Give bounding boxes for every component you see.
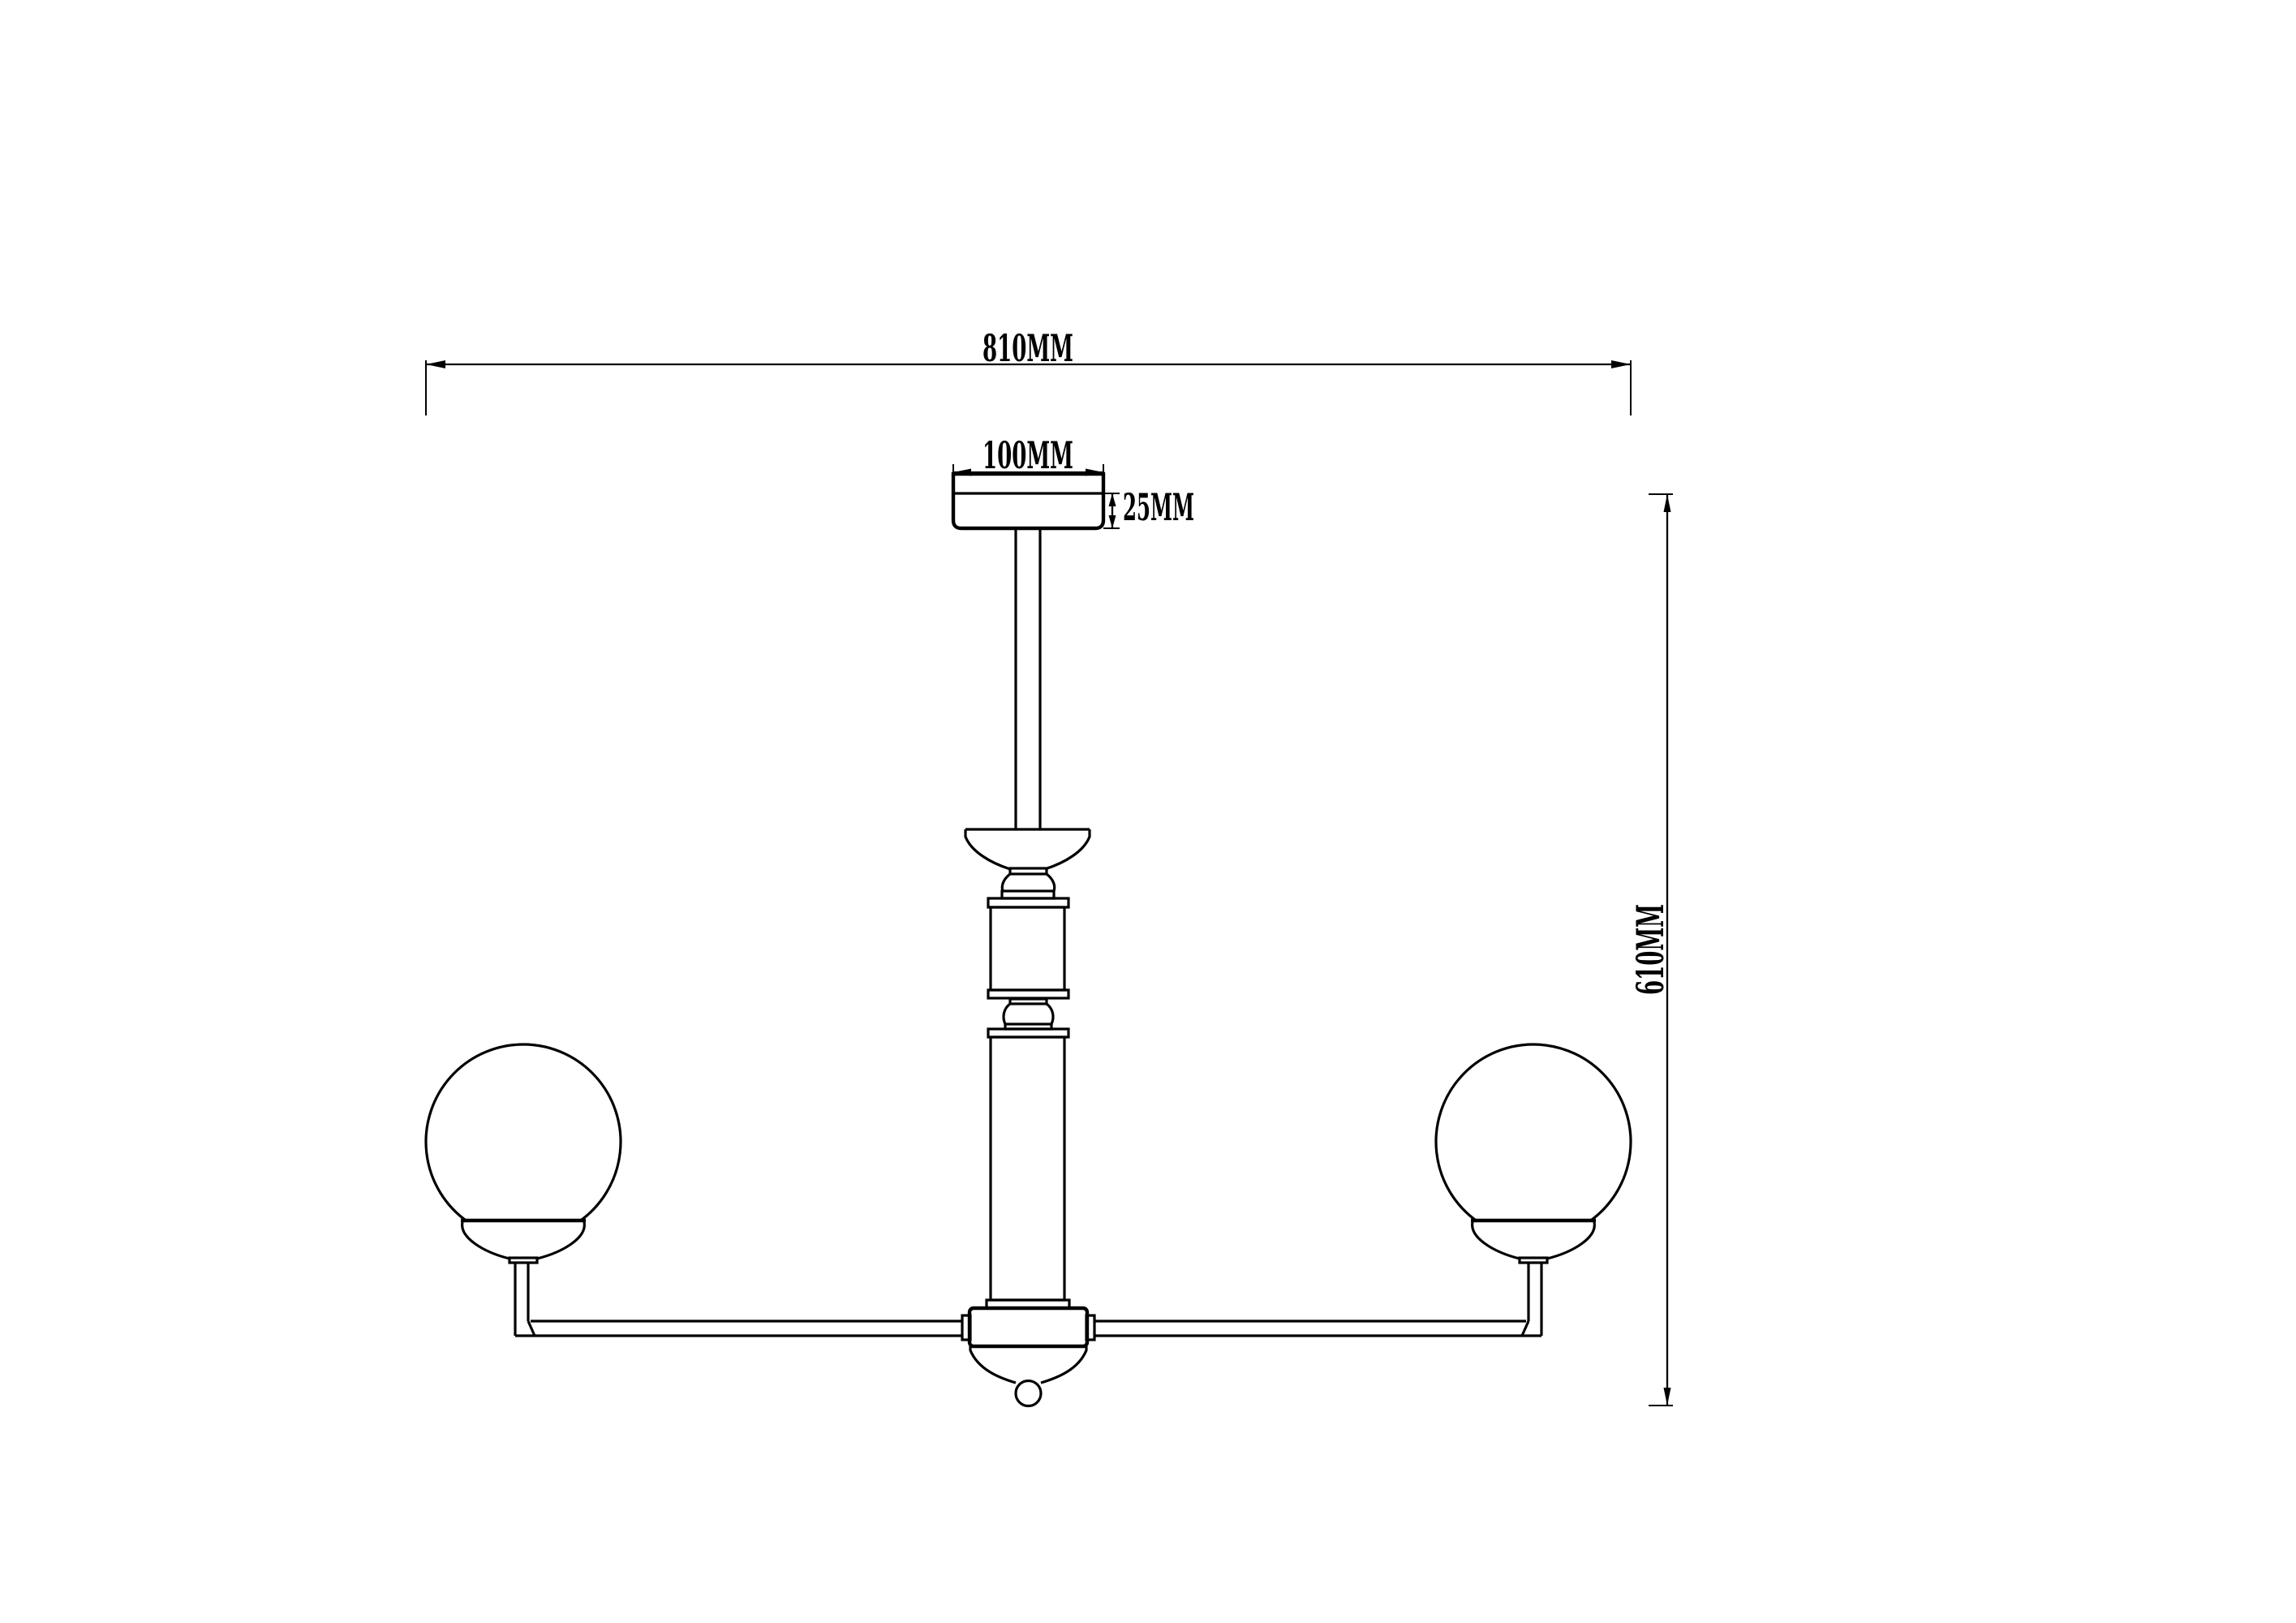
ceiling-canopy (953, 474, 1103, 528)
arrow-down-icon (1109, 515, 1116, 528)
hanging-stem (1016, 528, 1040, 829)
dim-overall-height: 610MM (1628, 494, 1673, 1406)
right-globe (1436, 1044, 1631, 1221)
finial-bell (970, 1346, 1016, 1383)
canopy-body (953, 474, 1103, 528)
left-shade-holder (461, 1220, 586, 1263)
flare-joint (965, 829, 1090, 869)
right-arm-plate (1086, 1315, 1094, 1340)
left-arm (515, 1262, 962, 1336)
chandelier-dimension-drawing: 810MM 100MM 25MM 610MM (0, 0, 2296, 1623)
arrow-right-icon (1611, 360, 1631, 368)
center-column (987, 1029, 1069, 1308)
dim-overall-width: 810MM (426, 326, 1631, 415)
canopy-width-label: 100MM (982, 433, 1073, 477)
arrow-up-icon (1664, 494, 1671, 512)
finial-ball (1016, 1381, 1041, 1406)
spool-knuckle-lower (1004, 999, 1053, 1029)
dim-canopy-width: 100MM (953, 433, 1103, 480)
arrow-left-icon (426, 360, 445, 368)
left-globe (426, 1044, 621, 1221)
overall-width-label: 810MM (982, 326, 1073, 370)
right-shade-holder (1471, 1220, 1596, 1263)
finial (970, 1346, 1086, 1406)
arrow-down-icon (1664, 1388, 1671, 1406)
right-arm (1094, 1262, 1541, 1336)
fixture (426, 474, 1631, 1406)
left-arm-plate (962, 1315, 970, 1340)
spool-knuckle-upper (1002, 868, 1055, 898)
left-arm-miter (528, 1321, 535, 1336)
arm-hub (962, 1308, 1094, 1346)
dim-canopy-height: 25MM (1103, 485, 1194, 529)
left-holder-collar (510, 1258, 537, 1263)
right-holder-collar (1520, 1258, 1547, 1263)
arrow-up-icon (1109, 493, 1116, 506)
drawing-canvas: 810MM 100MM 25MM 610MM (0, 0, 2296, 1623)
right-arm-miter (1522, 1321, 1529, 1336)
canopy-height-label: 25MM (1123, 485, 1194, 529)
upper-cylinder (988, 898, 1068, 998)
overall-height-label: 610MM (1628, 904, 1672, 995)
